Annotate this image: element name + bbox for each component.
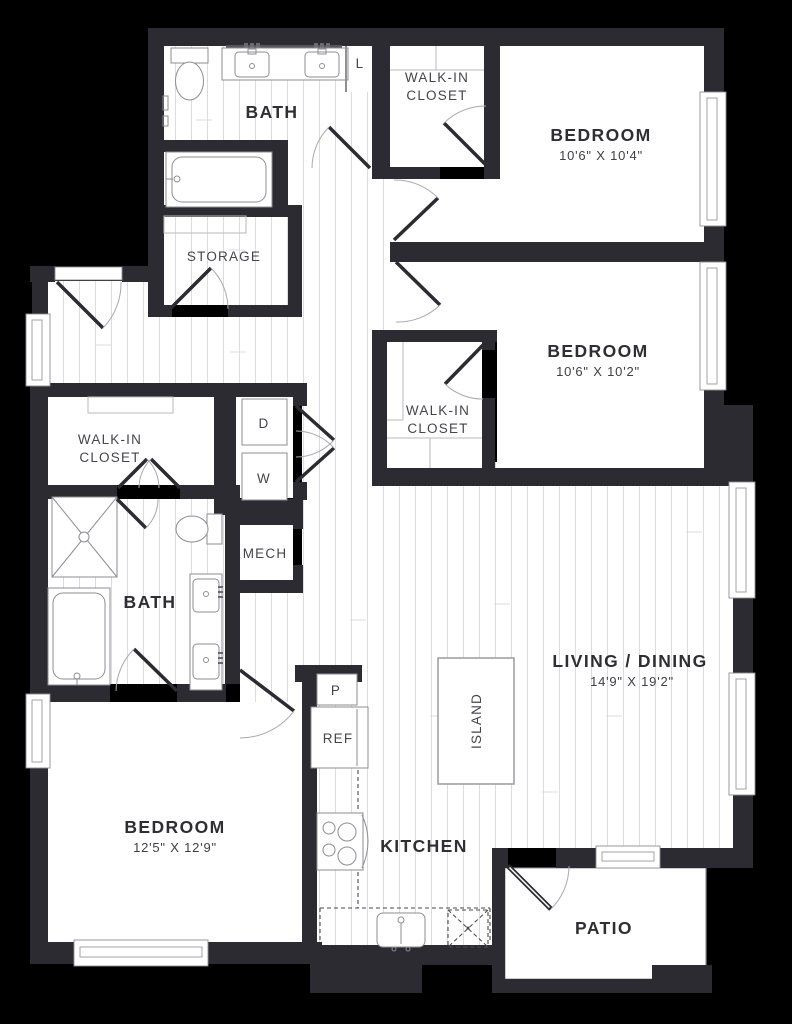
wall-segment (164, 140, 280, 152)
bedroom2-dims: 10'6" X 10'2" (556, 364, 640, 379)
south-corridor-floor (240, 593, 302, 703)
toilet (176, 514, 222, 544)
wall-segment (148, 305, 172, 317)
sink (305, 49, 339, 77)
wall-segment (372, 28, 390, 178)
sink (193, 579, 219, 612)
wall-segment (122, 266, 152, 282)
corridor-floor (302, 217, 372, 468)
wall-segment (293, 482, 307, 500)
bedroom1-floor (500, 46, 704, 246)
bath-lower-label: BATH (124, 592, 177, 612)
wic-mid-label-1: WALK-IN (406, 403, 470, 418)
sink (193, 644, 219, 679)
wall-segment (225, 485, 240, 684)
wall-segment (375, 330, 497, 342)
fridge-label: REF (323, 731, 354, 746)
wall-segment (293, 565, 303, 593)
entry-hall-floor (48, 281, 164, 383)
pantry-label: P (331, 683, 341, 698)
living-dims: 14'9" X 19'2" (590, 674, 674, 689)
mech-label: MECH (243, 546, 288, 561)
wall-segment (484, 28, 500, 179)
wall-segment (214, 383, 236, 499)
wall-segment (556, 848, 600, 868)
linen-divider (345, 46, 347, 92)
bedroom2-nook-floor (387, 262, 497, 330)
wall-segment (293, 390, 307, 406)
window (596, 846, 660, 868)
washer-label: W (257, 471, 271, 486)
window (26, 314, 50, 386)
window (729, 482, 755, 598)
shower (52, 497, 117, 577)
wall-segment (482, 398, 495, 470)
bedroom3-dims: 12'5" X 12'9" (133, 840, 217, 855)
linen-label: L (356, 56, 365, 71)
wall-segment (656, 848, 753, 868)
window (26, 694, 50, 768)
bathtub (166, 152, 272, 207)
kitchen-sink (377, 913, 425, 951)
wall-segment (372, 167, 440, 179)
wall-segment (272, 140, 288, 217)
wall-segment (310, 965, 422, 993)
bedroom2-label: BEDROOM (547, 341, 648, 361)
wall-segment (180, 485, 226, 499)
wic-top-label-1: WALK-IN (405, 70, 469, 85)
patio-label: PATIO (575, 918, 633, 938)
wall-segment (30, 383, 307, 397)
range (317, 813, 368, 870)
wall-segment (492, 848, 505, 993)
wall-segment (288, 205, 302, 317)
wall-segment (390, 242, 724, 262)
window (700, 92, 726, 226)
wall-segment (228, 305, 302, 317)
wall-segment (148, 28, 724, 46)
sink (235, 49, 269, 77)
island-label: ISLAND (469, 693, 484, 749)
bathtub (48, 588, 110, 685)
bedroom1-nook-floor (388, 179, 500, 242)
floor-plan-drawing: BATH L WALK-IN CLOSET BEDROOM 10'6" X 10… (0, 0, 792, 1024)
window (729, 673, 755, 795)
wall-segment (372, 330, 387, 470)
wic-left-label-1: WALK-IN (78, 432, 142, 447)
wall-segment (30, 383, 48, 693)
bedroom1-dims: 10'6" X 10'4" (559, 148, 643, 163)
kitchen-label: KITCHEN (380, 836, 468, 856)
hall-floor (164, 317, 302, 383)
wall-segment (652, 965, 712, 993)
window (700, 262, 726, 390)
living-label: LIVING / DINING (552, 651, 707, 671)
dryer-label: D (259, 416, 270, 431)
storage-label: STORAGE (187, 249, 261, 264)
bedroom1-label: BEDROOM (550, 125, 651, 145)
wall-segment (372, 468, 753, 486)
wall-segment (310, 945, 492, 965)
wall-segment (492, 979, 655, 993)
wall-segment (293, 513, 303, 529)
floor-plan: BATH L WALK-IN CLOSET BEDROOM 10'6" X 10… (0, 0, 792, 1024)
bedroom3-label: BEDROOM (124, 817, 225, 837)
window (74, 940, 208, 966)
entry-threshold (55, 267, 122, 280)
wall-segment (30, 266, 55, 282)
wic-top-label-2: CLOSET (406, 88, 467, 103)
wic-mid-label-2: CLOSET (407, 421, 468, 436)
wic-left-label-2: CLOSET (79, 450, 140, 465)
bath-top-label: BATH (246, 102, 299, 122)
